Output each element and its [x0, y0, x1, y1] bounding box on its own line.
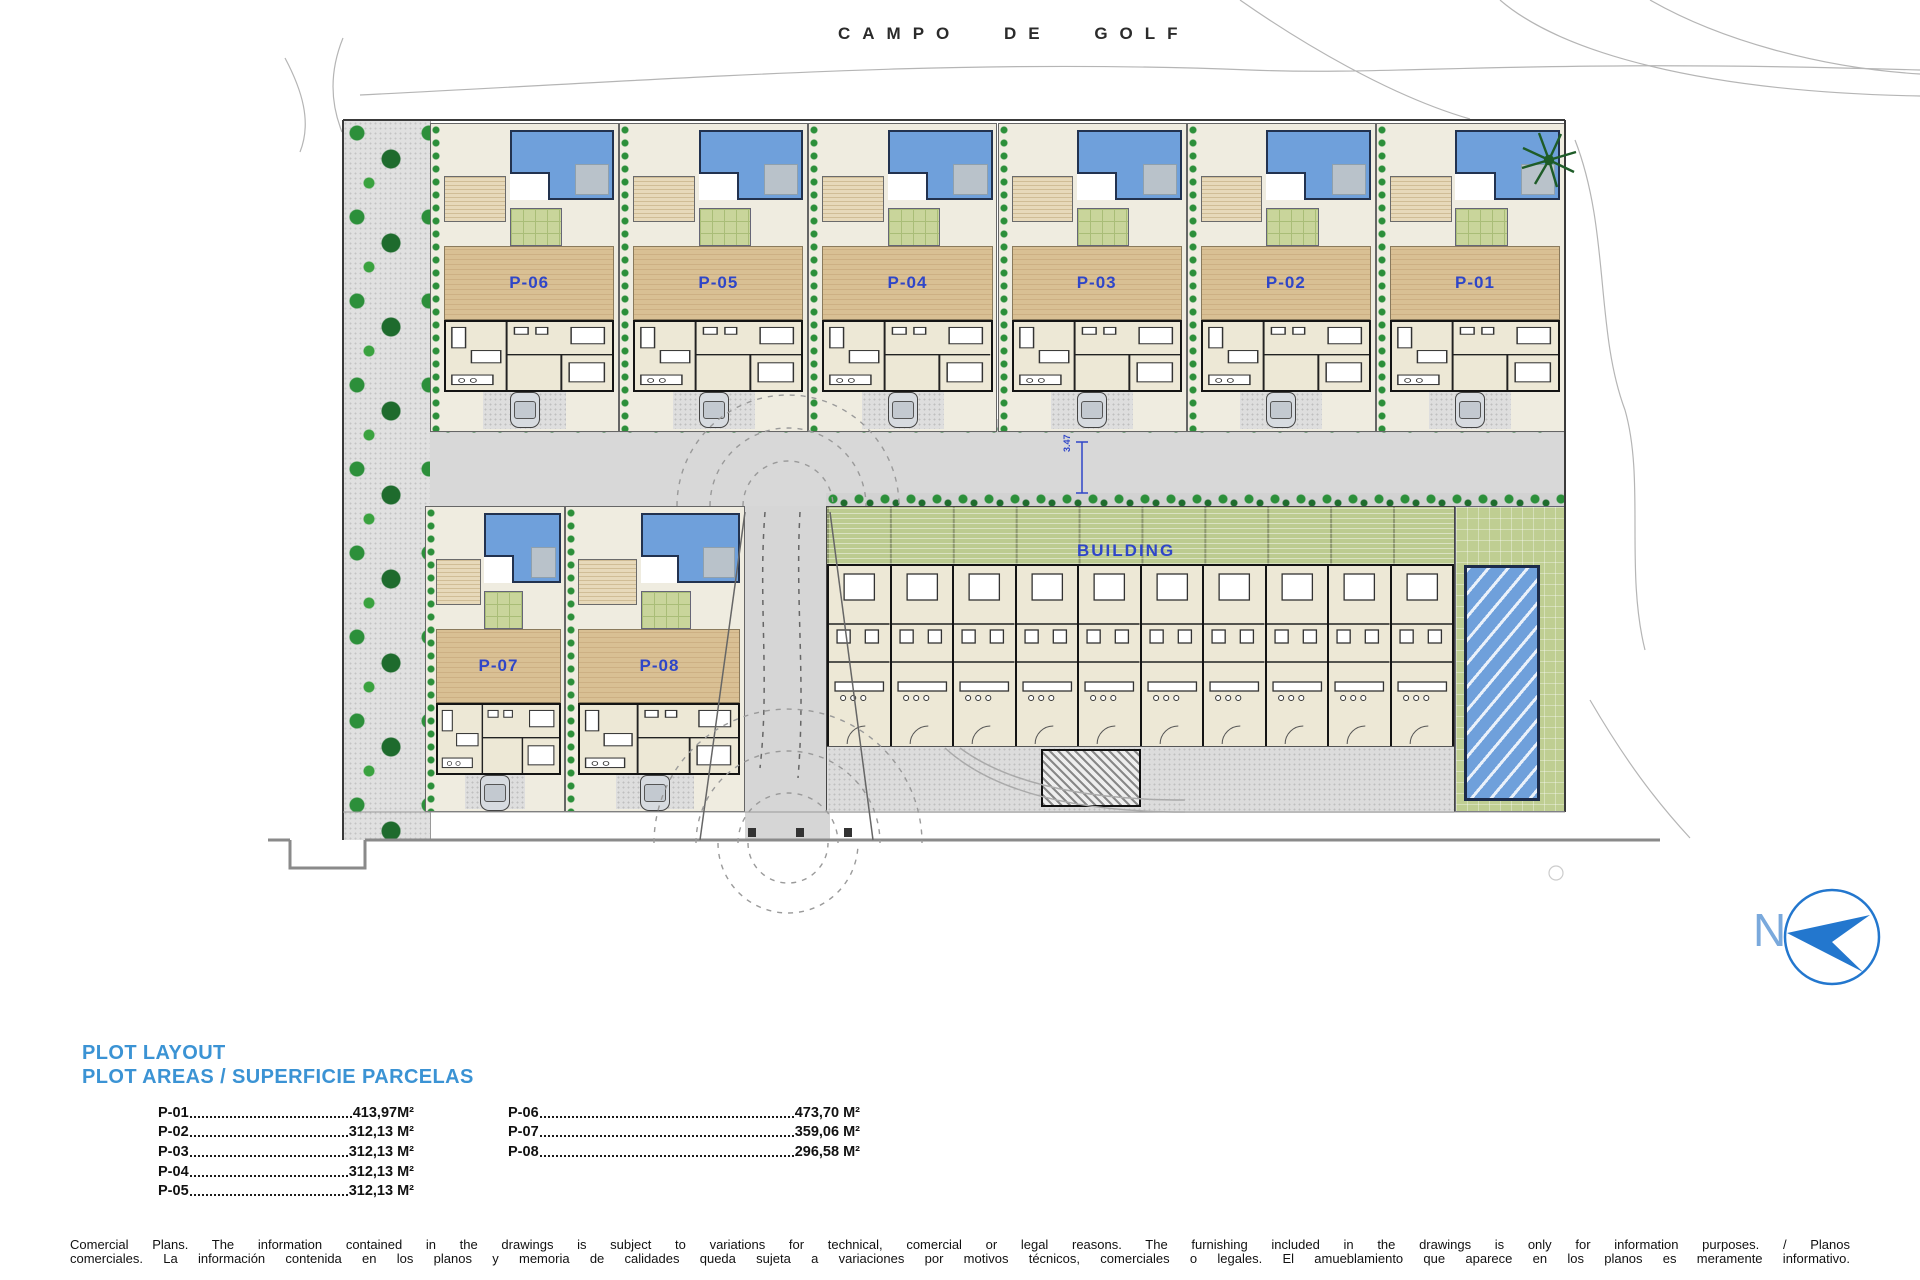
apartment-building: BUILDING — [826, 506, 1455, 812]
plot-label: P-07 — [478, 656, 518, 676]
wood-deck: P-03 — [1012, 246, 1182, 320]
car — [1455, 392, 1485, 428]
plot-id: P-06 — [508, 1105, 539, 1121]
plot-label: P-06 — [509, 273, 549, 293]
villa-floorplan — [578, 703, 740, 775]
unit-rooms — [1204, 566, 1265, 746]
plot-label: P-02 — [1266, 273, 1306, 293]
plot-label: P-03 — [1077, 273, 1117, 293]
hedge — [1377, 124, 1387, 431]
hedge — [999, 124, 1009, 431]
plot-area-row: P-02 312,13 M² — [158, 1121, 414, 1141]
wood-deck: P-06 — [444, 246, 614, 320]
plot-P-05: P-05 — [619, 123, 808, 432]
legend-heading-1: PLOT LAYOUT — [82, 1042, 226, 1065]
disclaimer-line-1: Comercial Plans. The information contain… — [70, 1238, 1850, 1252]
apartment-unit — [1390, 566, 1455, 746]
swimming-pool — [1266, 130, 1371, 200]
plot-label: P-08 — [639, 656, 679, 676]
louver-roof — [633, 176, 695, 222]
louver-roof — [444, 176, 506, 222]
floorplan-rooms — [1203, 322, 1369, 390]
hedge — [1188, 124, 1198, 431]
wood-deck: P-04 — [822, 246, 992, 320]
plot-P-04: P-04 — [808, 123, 997, 432]
louver-roof — [1390, 176, 1452, 222]
plot-id: P-01 — [158, 1105, 189, 1121]
swimming-pool — [510, 130, 615, 200]
unit-rooms — [829, 566, 890, 746]
plot-id: P-03 — [158, 1144, 189, 1160]
plot-area-row: P-07 359,06 M² — [508, 1121, 860, 1141]
villa-floorplan — [822, 320, 992, 392]
louver-roof — [822, 176, 884, 222]
building-label: BUILDING — [1077, 541, 1175, 561]
unit-rooms — [892, 566, 953, 746]
dot-leader — [190, 1194, 348, 1196]
dot-leader — [540, 1155, 794, 1157]
unit-rooms — [1392, 566, 1453, 746]
plot-area-value: 413,97M² — [353, 1105, 414, 1121]
stair-core — [1041, 749, 1141, 807]
unit-rooms — [1329, 566, 1390, 746]
plot-id: P-05 — [158, 1183, 189, 1199]
plot-P-07: P-07 — [425, 506, 565, 812]
apartment-unit — [1202, 566, 1265, 746]
louver-roof — [1012, 176, 1074, 222]
pergola — [1455, 208, 1507, 246]
hedge — [809, 124, 819, 431]
pergola — [510, 208, 562, 246]
hedge — [431, 124, 441, 431]
dot-leader — [190, 1116, 352, 1118]
golf-course-title: CAMPO DE GOLF — [838, 24, 1190, 44]
wood-deck: P-01 — [1390, 246, 1560, 320]
villa-floorplan — [633, 320, 803, 392]
site-plan-page: CAMPO DE GOLF P-06 — [0, 0, 1920, 1280]
plot-P-08: P-08 — [565, 506, 745, 812]
communal-pool — [1464, 565, 1540, 801]
plot-id: P-04 — [158, 1164, 189, 1180]
apartment-unit — [952, 566, 1015, 746]
pergola — [484, 591, 523, 629]
north-label: N — [1753, 903, 1786, 957]
disclaimer: Comercial Plans. The information contain… — [70, 1238, 1850, 1265]
entrance-driveway — [745, 506, 830, 840]
dot-leader — [190, 1155, 348, 1157]
floorplan-rooms — [1014, 322, 1180, 390]
wood-deck: P-05 — [633, 246, 803, 320]
plot-area-row: P-05 312,13 M² — [158, 1180, 414, 1200]
pergola — [888, 208, 940, 246]
dot-leader — [190, 1175, 348, 1177]
plot-label: P-01 — [1455, 273, 1495, 293]
plot-label: P-04 — [888, 273, 928, 293]
plot-area-row: P-06 473,70 M² — [508, 1101, 860, 1121]
apartment-unit — [1077, 566, 1140, 746]
swimming-pool — [699, 130, 804, 200]
villa-floorplan — [444, 320, 614, 392]
dot-leader — [540, 1135, 794, 1137]
pergola — [1077, 208, 1129, 246]
plot-area-row: P-03 312,13 M² — [158, 1140, 414, 1160]
building-units-row — [827, 566, 1454, 746]
louver-roof — [1201, 176, 1263, 222]
floorplan-rooms — [438, 705, 560, 773]
plot-area-value: 312,13 M² — [349, 1183, 414, 1199]
planter-row-building — [826, 493, 1565, 507]
plot-area-value: 296,58 M² — [795, 1144, 860, 1160]
apartment-unit — [1327, 566, 1390, 746]
communal-garden — [1455, 506, 1565, 812]
plot-area-row: P-01 413,97M² — [158, 1101, 414, 1121]
plot-area-value: 473,70 M² — [795, 1105, 860, 1121]
plot-areas-column-2: P-06 473,70 M² P-07 359,06 M² P-08 296,5… — [508, 1101, 860, 1160]
car — [699, 392, 729, 428]
unit-rooms — [1267, 566, 1328, 746]
apartment-unit — [1140, 566, 1203, 746]
pergola — [1266, 208, 1318, 246]
plot-P-01: P-01 — [1376, 123, 1565, 432]
plot-P-06: P-06 — [430, 123, 619, 432]
plot-id: P-08 — [508, 1144, 539, 1160]
car — [1077, 392, 1107, 428]
apartment-unit — [1015, 566, 1078, 746]
road-dimension-label: 3.47 — [1062, 434, 1072, 452]
apartment-unit — [827, 566, 890, 746]
wood-deck: P-02 — [1201, 246, 1371, 320]
building-terrace — [827, 746, 1454, 813]
left-garden-strip — [343, 121, 431, 840]
swimming-pool — [484, 513, 561, 583]
unit-rooms — [1142, 566, 1203, 746]
unit-rooms — [954, 566, 1015, 746]
car — [640, 775, 670, 811]
floorplan-rooms — [824, 322, 990, 390]
pergola — [699, 208, 751, 246]
louver-roof — [436, 559, 482, 605]
plot-P-02: P-02 — [1187, 123, 1376, 432]
plot-P-03: P-03 — [998, 123, 1187, 432]
apartment-unit — [890, 566, 953, 746]
villa-floorplan — [1201, 320, 1371, 392]
plot-area-value: 359,06 M² — [795, 1124, 860, 1140]
swimming-pool — [888, 130, 993, 200]
legend-heading-2: PLOT AREAS / SUPERFICIE PARCELAS — [82, 1066, 474, 1089]
dot-leader — [190, 1135, 348, 1137]
plot-area-value: 312,13 M² — [349, 1124, 414, 1140]
plot-areas-column-1: P-01 413,97M² P-02 312,13 M² P-03 312,13… — [158, 1101, 414, 1199]
apartment-unit — [1265, 566, 1328, 746]
pergola — [641, 591, 691, 629]
north-arrow — [1785, 890, 1879, 984]
car — [1266, 392, 1296, 428]
hedge — [426, 507, 436, 811]
wood-deck: P-08 — [578, 629, 740, 703]
plot-area-value: 312,13 M² — [349, 1164, 414, 1180]
wood-deck: P-07 — [436, 629, 562, 703]
unit-rooms — [1017, 566, 1078, 746]
street-edge — [268, 840, 1660, 868]
floorplan-rooms — [1392, 322, 1558, 390]
floorplan-rooms — [635, 322, 801, 390]
plot-id: P-07 — [508, 1124, 539, 1140]
unit-rooms — [1079, 566, 1140, 746]
plot-area-value: 312,13 M² — [349, 1144, 414, 1160]
dot-leader — [540, 1116, 794, 1118]
floorplan-rooms — [580, 705, 738, 773]
car — [480, 775, 510, 811]
plot-area-row: P-04 312,13 M² — [158, 1160, 414, 1180]
swimming-pool — [1077, 130, 1182, 200]
swimming-pool — [1455, 130, 1560, 200]
hedge — [566, 507, 576, 811]
car — [888, 392, 918, 428]
plot-label: P-05 — [698, 273, 738, 293]
villa-floorplan — [436, 703, 562, 775]
villa-floorplan — [1390, 320, 1560, 392]
floorplan-rooms — [446, 322, 612, 390]
villa-floorplan — [1012, 320, 1182, 392]
swimming-pool — [641, 513, 741, 583]
louver-roof — [578, 559, 637, 605]
hedge — [620, 124, 630, 431]
car — [510, 392, 540, 428]
plot-area-row: P-08 296,58 M² — [508, 1140, 860, 1160]
plot-id: P-02 — [158, 1124, 189, 1140]
disclaimer-line-2: comerciales. La información contenida en… — [70, 1252, 1850, 1266]
